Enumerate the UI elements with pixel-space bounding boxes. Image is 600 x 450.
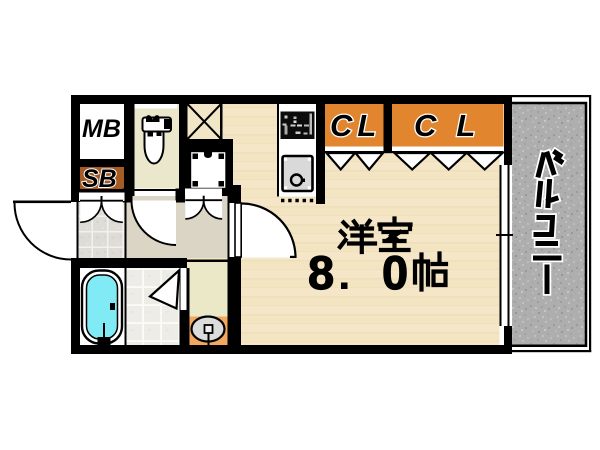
svg-text:CL: CL — [330, 108, 381, 143]
svg-text:MB: MB — [82, 115, 121, 143]
svg-text:CL: CL — [414, 108, 495, 143]
svg-text:8: 8 — [308, 246, 334, 299]
svg-text:0: 0 — [382, 246, 408, 299]
svg-text:SB: SB — [82, 165, 117, 193]
